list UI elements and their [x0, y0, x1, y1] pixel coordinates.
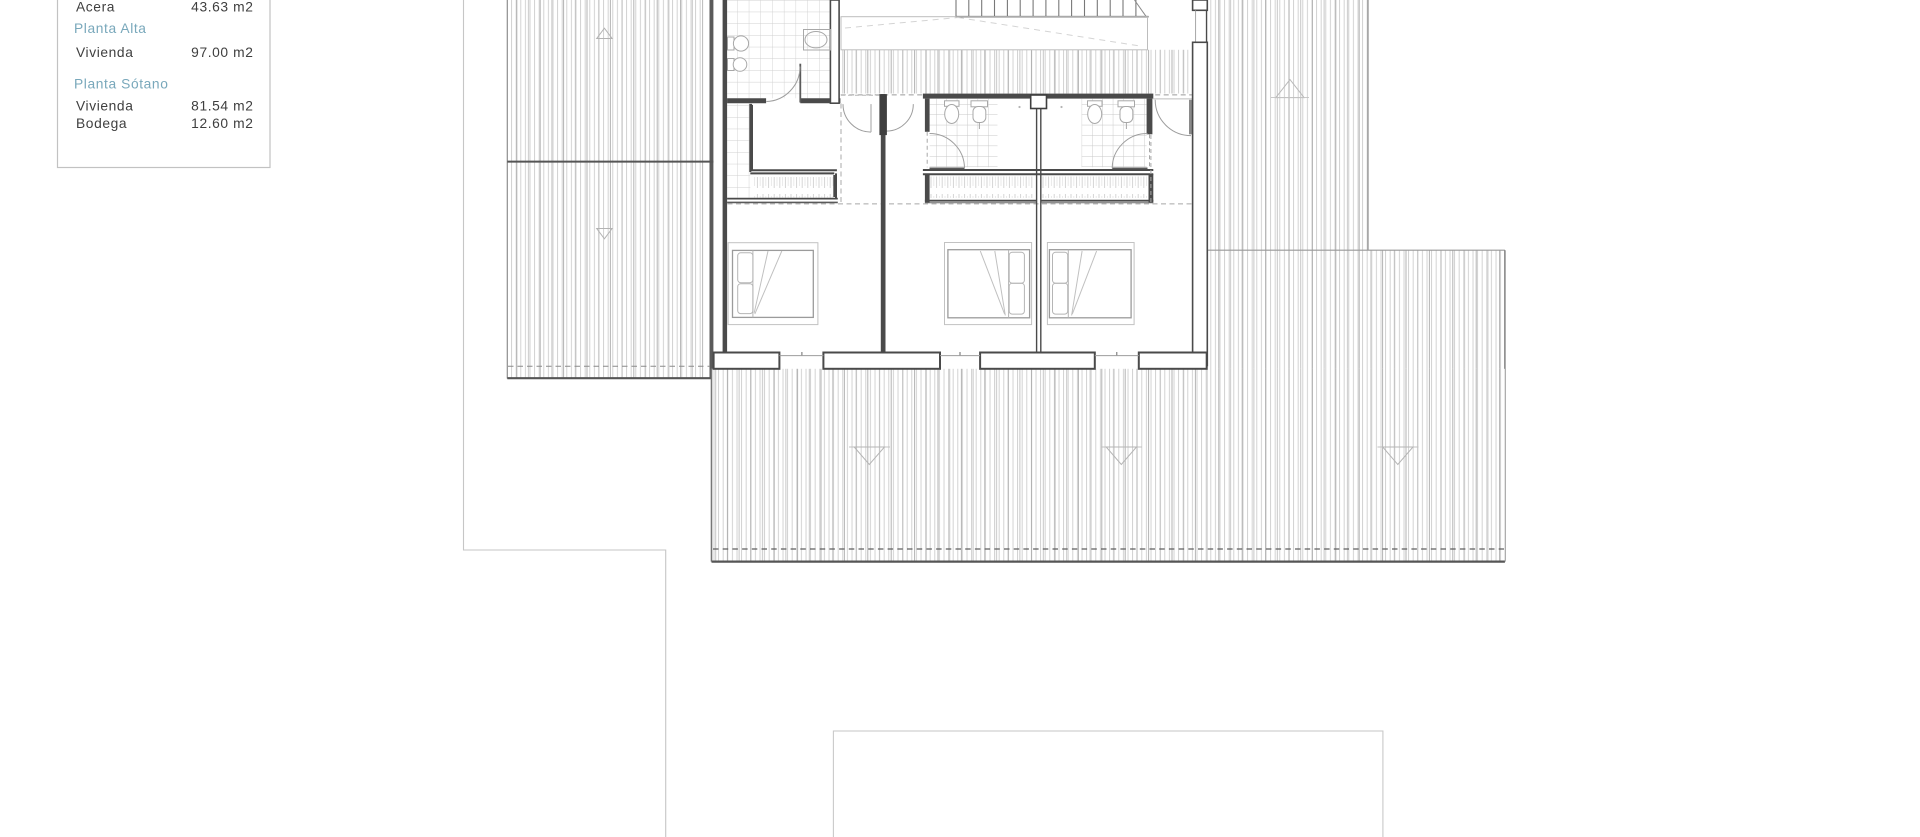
svg-text:43.63 m2: 43.63 m2 [191, 0, 253, 14]
svg-text:Vivienda: Vivienda [76, 99, 133, 114]
svg-text:Planta Sótano: Planta Sótano [74, 77, 168, 92]
svg-text:81.54 m2: 81.54 m2 [191, 99, 253, 114]
svg-text:Vivienda: Vivienda [76, 45, 133, 60]
svg-text:Acera: Acera [76, 0, 115, 14]
svg-text:12.60 m2: 12.60 m2 [191, 116, 253, 131]
svg-text:Bodega: Bodega [76, 116, 127, 131]
svg-text:Planta Alta: Planta Alta [74, 21, 147, 36]
svg-text:97.00 m2: 97.00 m2 [191, 45, 253, 60]
